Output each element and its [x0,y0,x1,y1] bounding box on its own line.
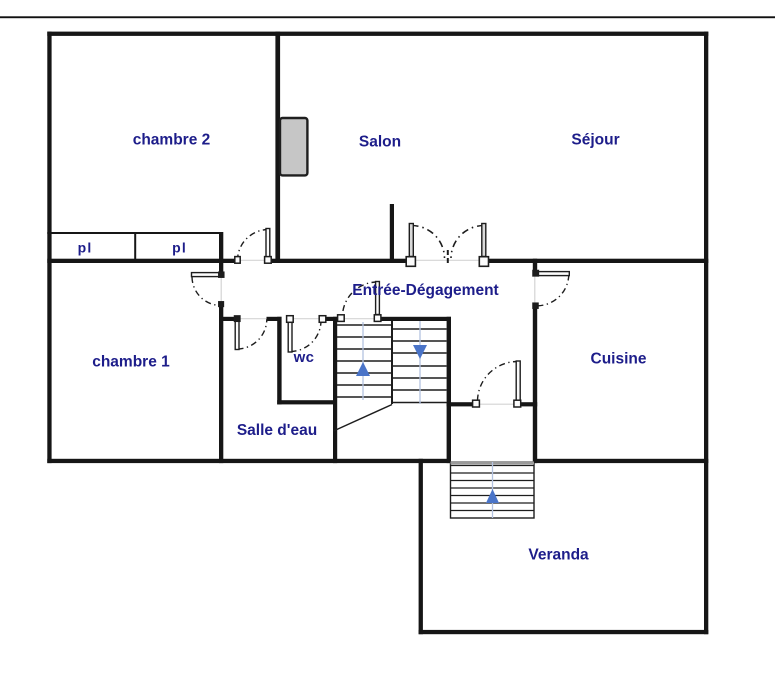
svg-text:Salle d'eau: Salle d'eau [237,422,317,439]
svg-text:chambre 1: chambre 1 [92,354,170,371]
svg-text:Veranda: Veranda [528,547,589,564]
svg-text:pl: pl [78,240,93,256]
svg-text:Séjour: Séjour [571,132,619,149]
svg-text:Cuisine: Cuisine [591,351,647,368]
svg-text:chambre 2: chambre 2 [133,132,211,149]
svg-text:Entrée-Dégagement: Entrée-Dégagement [352,282,498,299]
svg-text:pl: pl [172,240,187,256]
svg-text:Salon: Salon [359,134,401,151]
svg-text:wc: wc [293,349,315,366]
